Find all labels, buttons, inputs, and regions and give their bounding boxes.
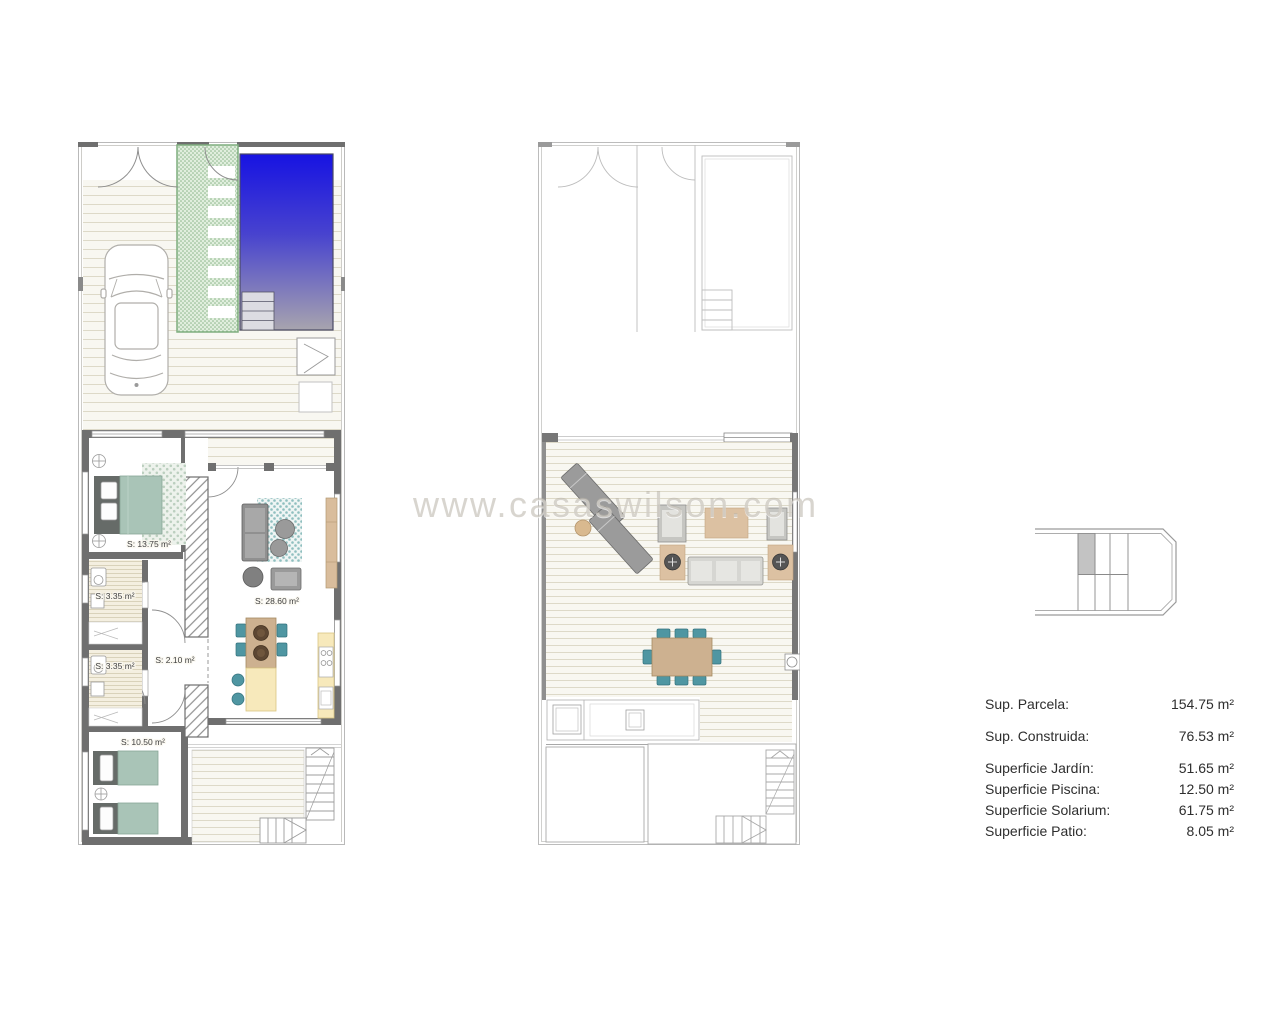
area-row-piscina: Superficie Piscina: 12.50 m² [985, 779, 1234, 800]
stair-section-detail [1035, 522, 1185, 622]
hall-label: S: 2.10 m² [155, 655, 194, 665]
pool-outline [702, 156, 792, 330]
area-label: Superficie Jardín: [985, 758, 1094, 779]
area-row-construida: Sup. Construida: 76.53 m² [985, 726, 1234, 747]
sideboard [326, 498, 337, 588]
area-row-solarium: Superficie Solarium: 61.75 m² [985, 800, 1234, 821]
bathroom-2: S: 3.35 m² [89, 650, 142, 726]
area-label: Superficie Solarium: [985, 800, 1110, 821]
kitchen-counter [318, 633, 334, 718]
area-row-parcela: Sup. Parcela: 154.75 m² [985, 694, 1234, 715]
wall-fixture [785, 654, 800, 670]
single-bed [93, 751, 158, 785]
single-bed [93, 803, 158, 834]
car-icon [101, 245, 172, 395]
patio-outline [546, 744, 796, 844]
area-value: 76.53 m² [1179, 726, 1234, 747]
master-bedroom-label: S: 13.75 m² [127, 539, 171, 549]
outdoor-shower [297, 338, 335, 412]
area-label: Sup. Parcela: [985, 694, 1069, 715]
area-row-patio: Superficie Patio: 8.05 m² [985, 821, 1234, 842]
living-room-label: S: 28.60 m² [255, 596, 299, 606]
watermark: www.casaswilson.com [413, 484, 819, 526]
pouf [271, 540, 288, 557]
area-row-jardin: Superficie Jardín: 51.65 m² [985, 758, 1234, 779]
area-value: 12.50 m² [1179, 779, 1234, 800]
side-table [243, 567, 263, 587]
area-value: 61.75 m² [1179, 800, 1234, 821]
area-value: 8.05 m² [1187, 821, 1234, 842]
solarium-deck-lower [700, 697, 792, 742]
double-bed [94, 476, 162, 534]
solarium [542, 433, 800, 742]
area-value: 51.65 m² [1179, 758, 1234, 779]
bathroom-1: S: 3.35 m² [89, 560, 142, 644]
pool-steps [242, 292, 274, 330]
swimming-pool [240, 154, 333, 330]
outdoor-kitchen-counter [547, 700, 699, 740]
washbasin-icon [91, 682, 104, 696]
ground-floor-plan: S: 13.75 m² S: 3.35 m² S: 3.35 m² S: 2.1… [78, 142, 345, 845]
pouf [276, 520, 295, 539]
wall-light-icon [95, 788, 107, 800]
armchair [271, 568, 301, 590]
bedroom-2-label: S: 10.50 m² [121, 737, 165, 747]
sofa [242, 504, 268, 561]
area-label: Superficie Piscina: [985, 779, 1100, 800]
area-value: 154.75 m² [1171, 694, 1234, 715]
garden-path [177, 145, 238, 332]
areas-table: Sup. Parcela: 154.75 m² Sup. Construida:… [985, 694, 1234, 842]
bathroom-1-label: S: 3.35 m² [95, 591, 134, 601]
shaded-cell [1078, 534, 1095, 575]
area-label: Superficie Patio: [985, 821, 1087, 842]
bathroom-2-label: S: 3.35 m² [95, 661, 134, 671]
area-label: Sup. Construida: [985, 726, 1089, 747]
wardrobe-hatch-strip [185, 477, 208, 737]
